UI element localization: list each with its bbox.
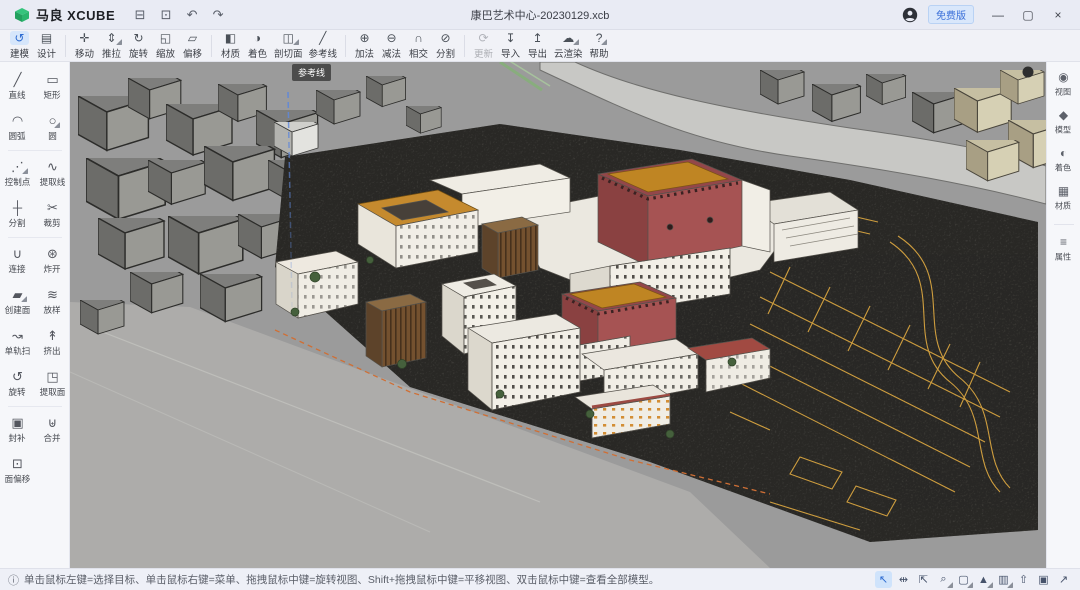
import-icon: ↧ xyxy=(502,31,520,45)
toolbar-modeling[interactable]: ↺建模 xyxy=(6,30,33,62)
boolean-subtract-label: 减法 xyxy=(382,46,401,60)
status-hint: ⓘ 单击鼠标左键=选择目标、单击鼠标右键=菜单、拖拽鼠标中键=旋转视图、Shif… xyxy=(8,572,659,588)
move-icon: ✛ xyxy=(75,31,93,45)
connect-icon: ∪ xyxy=(10,246,26,261)
help-icon: ? xyxy=(592,31,607,45)
fullscreen-tool[interactable]: ↗ xyxy=(1055,571,1072,588)
toolbar-shading[interactable]: ◑着色 xyxy=(244,30,271,62)
explode-label: 炸开 xyxy=(44,262,61,274)
cloud-render-icon: ☁ xyxy=(558,31,578,45)
tool-patch[interactable]: ▣封补 xyxy=(0,409,35,450)
toolbar-boolean-add[interactable]: ⊕加法 xyxy=(351,30,378,62)
guide-line-tooltip: 参考线 xyxy=(292,64,331,81)
rotate-label: 旋转 xyxy=(129,46,148,60)
cloud-render-label: 云渲染 xyxy=(554,46,583,60)
view-icon: ◉ xyxy=(1058,70,1068,84)
update-icon: ⟳ xyxy=(475,31,493,45)
toolbar-cloud-render[interactable]: ☁云渲染 xyxy=(551,30,586,62)
palette-divider xyxy=(8,150,62,151)
boolean-split-label: 分割 xyxy=(436,46,455,60)
arc-label: 圆弧 xyxy=(9,129,26,141)
panel-material[interactable]: ▦材质 xyxy=(1054,184,1072,212)
palette-divider xyxy=(8,406,62,407)
toolbar-design[interactable]: ▤设计 xyxy=(33,30,60,62)
boolean-intersect-label: 相交 xyxy=(409,46,428,60)
material-label: 材质 xyxy=(1055,200,1071,212)
account-avatar[interactable] xyxy=(902,7,918,23)
undo-icon[interactable]: ↶ xyxy=(181,4,203,26)
tool-line[interactable]: ╱直线 xyxy=(0,66,35,107)
tool-loft[interactable]: ≋放样 xyxy=(35,281,70,322)
boolean-split-icon: ⊘ xyxy=(437,31,455,45)
shading-icon: ◐ xyxy=(1060,146,1067,160)
patch-icon: ▣ xyxy=(8,415,26,430)
version-badge[interactable]: 免费版 xyxy=(928,5,974,24)
display-shaded[interactable]: ▲ xyxy=(975,571,992,588)
viewport-tools: ↖⇹⇱⌕▢▲▥⇧▣↗ xyxy=(875,571,1072,588)
main-toolbar: ↺建模▤设计✛移动⇕推拉↻旋转◱缩放▱偏移◧材质◑着色◫剖切面╱参考线⊕加法⊖减… xyxy=(0,30,1080,62)
patch-label: 封补 xyxy=(9,431,26,443)
toolbar-offset[interactable]: ▱偏移 xyxy=(179,30,206,62)
export-icon: ↥ xyxy=(529,31,547,45)
toolbar-export[interactable]: ↥导出 xyxy=(524,30,551,62)
tool-merge[interactable]: ⊎合并 xyxy=(35,409,70,450)
tool-split[interactable]: ┼分割 xyxy=(0,194,35,235)
push-pull-label: 推拉 xyxy=(102,46,121,60)
titlebar: 马良 XCUBE ⊟⊡↶↷ 康巴艺术中心-20230129.xcb 免费版 —▢… xyxy=(0,0,1080,30)
circle-icon: ○ xyxy=(46,113,60,128)
push-pull-icon: ⇕ xyxy=(102,31,120,45)
tool-connect[interactable]: ∪连接 xyxy=(0,240,35,281)
scale-label: 缩放 xyxy=(156,46,175,60)
tool-control-point[interactable]: ⋰控制点 xyxy=(0,153,35,194)
snapshot-tool[interactable]: ▣ xyxy=(1035,571,1052,588)
section-plane-icon: ◫ xyxy=(279,31,298,45)
open-file-icon[interactable]: ⊟ xyxy=(129,4,151,26)
app-logo-icon xyxy=(14,7,30,23)
rotate-icon: ↻ xyxy=(129,31,147,45)
shading-label: 着色 xyxy=(248,46,267,60)
offset-icon: ▱ xyxy=(184,31,201,45)
toolbar-guide-line[interactable]: ╱参考线 xyxy=(306,30,341,62)
circle-label: 圆 xyxy=(48,129,57,141)
app-brand: 马良 XCUBE xyxy=(14,5,115,24)
tool-extrude[interactable]: ↟挤出 xyxy=(35,322,70,363)
titlebar-quick-actions: ⊟⊡↶↷ xyxy=(129,4,229,26)
face-offset-icon: ⊡ xyxy=(9,456,26,471)
view-label: 视图 xyxy=(1055,86,1071,98)
revolve-icon: ↺ xyxy=(9,369,26,384)
close-button[interactable]: × xyxy=(1044,3,1072,27)
shading-icon: ◑ xyxy=(250,31,265,45)
maximize-button[interactable]: ▢ xyxy=(1014,3,1042,27)
trim-icon: ✂ xyxy=(44,200,61,215)
zoom-tool[interactable]: ⌕ xyxy=(935,571,952,588)
tool-face-offset[interactable]: ⊡面偏移 xyxy=(0,450,35,491)
split-label: 分割 xyxy=(9,216,26,228)
extract-line-label: 提取线 xyxy=(40,175,66,187)
line-label: 直线 xyxy=(9,88,26,100)
boolean-intersect-icon: ∩ xyxy=(410,31,427,45)
window-controls: —▢× xyxy=(984,3,1072,27)
line-icon: ╱ xyxy=(11,72,25,87)
palette-divider xyxy=(8,237,62,238)
dock-divider xyxy=(1054,224,1074,225)
design-icon: ▤ xyxy=(37,31,56,45)
toolbar-separator xyxy=(211,35,212,57)
empty-cell xyxy=(35,450,70,491)
arc-icon: ◠ xyxy=(9,113,26,128)
panel-model[interactable]: ◆模型 xyxy=(1054,108,1072,136)
viewport-layout[interactable]: ▥ xyxy=(995,571,1012,588)
toolbar-separator xyxy=(464,35,465,57)
tool-arc[interactable]: ◠圆弧 xyxy=(0,107,35,148)
control-point-icon: ⋰ xyxy=(8,159,27,174)
face-offset-label: 面偏移 xyxy=(5,472,31,484)
properties-icon: ≡ xyxy=(1060,235,1067,249)
left-tool-palette: ╱直线▭矩形◠圆弧○圆⋰控制点∿提取线┼分割✂裁剪∪连接⊛炸开▰创建面≋放样↝单… xyxy=(0,62,70,568)
display-box[interactable]: ▢ xyxy=(955,571,972,588)
toolbar-boolean-split[interactable]: ⊘分割 xyxy=(432,30,459,62)
model-label: 模型 xyxy=(1055,124,1071,136)
create-face-label: 创建面 xyxy=(5,303,31,315)
tool-extract-line[interactable]: ∿提取线 xyxy=(35,153,70,194)
split-icon: ┼ xyxy=(10,200,25,215)
tool-explode[interactable]: ⊛炸开 xyxy=(35,240,70,281)
loft-icon: ≋ xyxy=(44,287,61,302)
left-tool-grid: ╱直线▭矩形◠圆弧○圆⋰控制点∿提取线┼分割✂裁剪∪连接⊛炸开▰创建面≋放样↝单… xyxy=(0,66,69,491)
guide-line-icon: ╱ xyxy=(315,31,330,45)
tool-extract-face[interactable]: ◳提取面 xyxy=(35,363,70,404)
revolve-label: 旋转 xyxy=(9,385,26,397)
modeling-icon: ↺ xyxy=(10,31,28,45)
move-label: 移动 xyxy=(75,46,94,60)
sweep-one-rail-label: 单轨扫 xyxy=(5,344,31,356)
shading-label: 着色 xyxy=(1055,162,1071,174)
connect-label: 连接 xyxy=(9,262,26,274)
merge-icon: ⊎ xyxy=(45,415,61,430)
statusbar: ⓘ 单击鼠标左键=选择目标、单击鼠标右键=菜单、拖拽鼠标中键=旋转视图、Shif… xyxy=(0,568,1080,590)
section-plane-label: 剖切面 xyxy=(274,46,303,60)
create-face-icon: ▰ xyxy=(10,287,26,302)
panel-view[interactable]: ◉视图 xyxy=(1054,70,1072,98)
explode-icon: ⊛ xyxy=(44,246,61,261)
tool-revolve[interactable]: ↺旋转 xyxy=(0,363,35,404)
toolbar-help[interactable]: ?帮助 xyxy=(586,30,613,62)
panel-shading[interactable]: ◐着色 xyxy=(1054,146,1072,174)
right-dock: ◉视图◆模型◐着色▦材质≡属性 xyxy=(1046,62,1080,568)
viewport-3d[interactable]: 参考线 xyxy=(70,62,1046,568)
control-point-label: 控制点 xyxy=(5,175,31,187)
import-label: 导入 xyxy=(501,46,520,60)
material-icon: ◧ xyxy=(221,31,240,45)
scale-icon: ◱ xyxy=(156,31,175,45)
tool-rectangle[interactable]: ▭矩形 xyxy=(35,66,70,107)
minimize-button[interactable]: — xyxy=(984,3,1012,27)
toolbar-material[interactable]: ◧材质 xyxy=(217,30,244,62)
boolean-add-icon: ⊕ xyxy=(356,31,374,45)
toolbar-move[interactable]: ✛移动 xyxy=(71,30,98,62)
material-icon: ▦ xyxy=(1058,184,1069,198)
trim-label: 裁剪 xyxy=(44,216,61,228)
toolbar-push-pull[interactable]: ⇕推拉 xyxy=(98,30,125,62)
model-icon: ◆ xyxy=(1059,108,1068,122)
extract-line-icon: ∿ xyxy=(44,159,61,174)
tool-sweep-one-rail[interactable]: ↝单轨扫 xyxy=(0,322,35,363)
scene-render xyxy=(70,62,1046,568)
orbit-tool[interactable]: ⇱ xyxy=(915,571,932,588)
toolbar-boolean-intersect[interactable]: ∩相交 xyxy=(405,30,432,62)
toolbar-import[interactable]: ↧导入 xyxy=(497,30,524,62)
toolbar-boolean-subtract[interactable]: ⊖减法 xyxy=(378,30,405,62)
offset-label: 偏移 xyxy=(183,46,202,60)
tool-create-face[interactable]: ▰创建面 xyxy=(0,281,35,322)
status-hint-text: 单击鼠标左键=选择目标、单击鼠标右键=菜单、拖拽鼠标中键=旋转视图、Shift+… xyxy=(24,572,659,587)
boolean-subtract-icon: ⊖ xyxy=(383,31,401,45)
boolean-add-label: 加法 xyxy=(355,46,374,60)
extrude-label: 挤出 xyxy=(44,344,61,356)
nav-ball xyxy=(1023,67,1034,78)
loft-label: 放样 xyxy=(44,303,61,315)
extrude-icon: ↟ xyxy=(44,328,61,343)
toolbar-scale[interactable]: ◱缩放 xyxy=(152,30,179,62)
extract-face-icon: ◳ xyxy=(43,369,61,384)
modeling-label: 建模 xyxy=(10,46,29,60)
export-label: 导出 xyxy=(528,46,547,60)
help-label: 帮助 xyxy=(590,46,609,60)
rectangle-label: 矩形 xyxy=(44,88,61,100)
extract-face-label: 提取面 xyxy=(40,385,66,397)
panel-properties[interactable]: ≡属性 xyxy=(1054,235,1072,263)
update-label: 更新 xyxy=(474,46,493,60)
guide-line-label: 参考线 xyxy=(309,46,338,60)
toolbar-update: ⟳更新 xyxy=(470,30,497,62)
save-file-icon[interactable]: ⊡ xyxy=(155,4,177,26)
toolbar-separator xyxy=(345,35,346,57)
pan-tool[interactable]: ⇹ xyxy=(895,571,912,588)
design-label: 设计 xyxy=(37,46,56,60)
toolbar-rotate[interactable]: ↻旋转 xyxy=(125,30,152,62)
merge-label: 合并 xyxy=(44,431,61,443)
rectangle-icon: ▭ xyxy=(43,72,61,87)
app-name: 马良 XCUBE xyxy=(36,5,115,24)
material-label: 材质 xyxy=(221,46,240,60)
toolbar-section-plane[interactable]: ◫剖切面 xyxy=(271,30,306,62)
properties-label: 属性 xyxy=(1055,251,1071,263)
toolbar-separator xyxy=(65,35,66,57)
sweep-one-rail-icon: ↝ xyxy=(9,328,26,343)
tool-circle[interactable]: ○圆 xyxy=(35,107,70,148)
redo-icon[interactable]: ↷ xyxy=(207,4,229,26)
walk-tool[interactable]: ⇧ xyxy=(1015,571,1032,588)
select-tool[interactable]: ↖ xyxy=(875,571,892,588)
info-icon: ⓘ xyxy=(8,572,19,588)
tool-trim[interactable]: ✂裁剪 xyxy=(35,194,70,235)
